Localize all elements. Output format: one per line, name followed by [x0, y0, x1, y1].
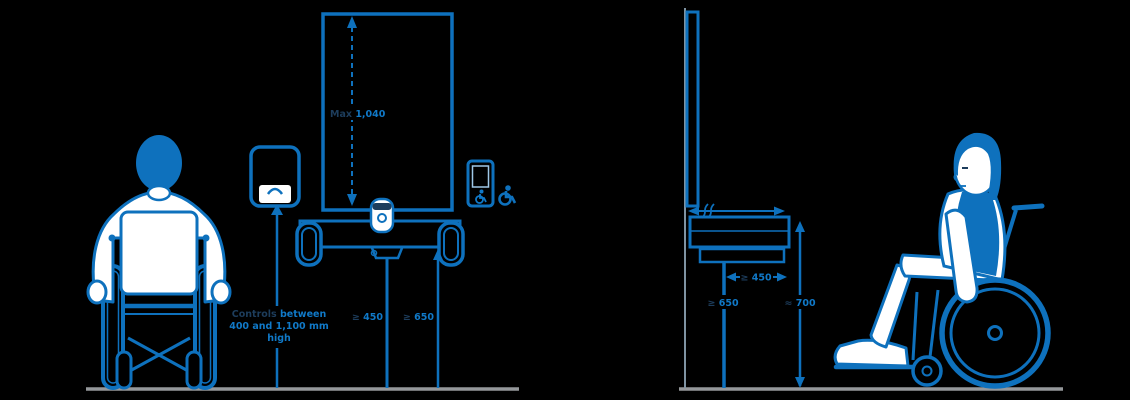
arrow-left-icon: [688, 207, 699, 216]
privacy-panel-side: [687, 12, 698, 206]
panel-height-label: Max 1,040: [330, 109, 386, 120]
accessibility-diagram: Controls between 400 and 1,100 mm high M…: [0, 0, 1130, 400]
caption-line-1: Controls between: [232, 309, 327, 320]
panel-height-value: 1,040: [355, 109, 385, 120]
caster-left: [117, 352, 131, 388]
footrest-post: [913, 292, 917, 360]
caster-wheel: [913, 357, 941, 385]
knee-depth-symbol: ≥: [740, 273, 751, 284]
caption-line-2: 400 and 1,100 mm: [229, 321, 329, 332]
knee-depth-dimension: ≥ 450: [726, 270, 787, 284]
knee-depth-label: ≥ 450: [740, 273, 772, 284]
counter-height-value: 700: [796, 298, 816, 309]
counter-height-label: ≈ 700: [784, 298, 816, 309]
push-handle: [1014, 206, 1042, 208]
caption-line-1-rest: between: [277, 309, 327, 320]
privacy-panel: Max 1,040: [323, 14, 452, 210]
wheel-hub: [989, 327, 1002, 340]
knee-height-label: ≥ 650: [707, 298, 739, 309]
desk-slab: [690, 217, 789, 247]
isa-head: [505, 185, 511, 191]
arrow-down-icon: [795, 377, 805, 388]
scene-right: ≥ 450 ≥ 650 ≈ 700: [679, 8, 1063, 389]
caption-line-1-emphasis: Controls: [232, 309, 277, 320]
calf: [871, 265, 910, 347]
table-depth-value: 450: [363, 312, 383, 323]
grab-handle-right-icon: [439, 223, 463, 265]
arrow-right-icon: [777, 273, 787, 282]
head: [136, 135, 182, 191]
collar: [148, 186, 170, 200]
isa-head: [480, 190, 484, 194]
camera-lens-icon: [378, 214, 386, 222]
wheelchair-user-side-icon: [835, 133, 1048, 386]
panel-height-prefix: Max: [330, 109, 355, 120]
table-clearance-value: 650: [414, 312, 434, 323]
caster-right: [187, 352, 201, 388]
knee-height-value: 650: [719, 298, 739, 309]
counter-height-symbol: ≈: [784, 298, 795, 309]
table-clearance-label: ≥ 650: [403, 312, 435, 323]
intercom-pole: [271, 204, 283, 388]
knee-depth-value: 450: [752, 273, 772, 284]
camera-device-icon: [371, 199, 393, 232]
isa-symbol-icon: [500, 185, 516, 204]
camera-band: [373, 203, 392, 210]
diagram-canvas: Controls between 400 and 1,100 mm high M…: [0, 0, 1130, 400]
counter-table: ≥ 450 ≥ 650: [297, 199, 463, 388]
wheelchair-user-front-icon: [88, 135, 230, 388]
hand-right: [212, 281, 230, 303]
table-clearance-symbol: ≥: [403, 312, 414, 323]
table-depth-symbol: ≥: [352, 312, 363, 323]
scene-left: Controls between 400 and 1,100 mm high M…: [86, 14, 519, 389]
shoulder-left: [109, 235, 116, 242]
arrow-right-icon: [774, 207, 785, 216]
front-fork: [930, 290, 938, 357]
shoulder-right: [203, 235, 210, 242]
arrow-up-icon: [795, 221, 805, 232]
chest-panel: [121, 212, 197, 294]
intercom-device-icon: [251, 147, 299, 206]
device-panel: [259, 185, 291, 203]
device-height-caption: Controls between 400 and 1,100 mm high: [229, 306, 329, 348]
arrow-left-icon: [726, 273, 736, 282]
grab-handle-left-icon: [297, 223, 321, 265]
hand-left: [88, 281, 106, 303]
phone-with-isa-icon: [468, 161, 493, 206]
knee-height-annotation: ≥ 650: [702, 295, 744, 309]
table-depth-label: ≥ 450: [352, 312, 384, 323]
knee-height-symbol: ≥: [707, 298, 718, 309]
desk-shelf: [700, 249, 784, 262]
shoe: [835, 340, 908, 366]
caption-line-3: high: [267, 333, 291, 344]
